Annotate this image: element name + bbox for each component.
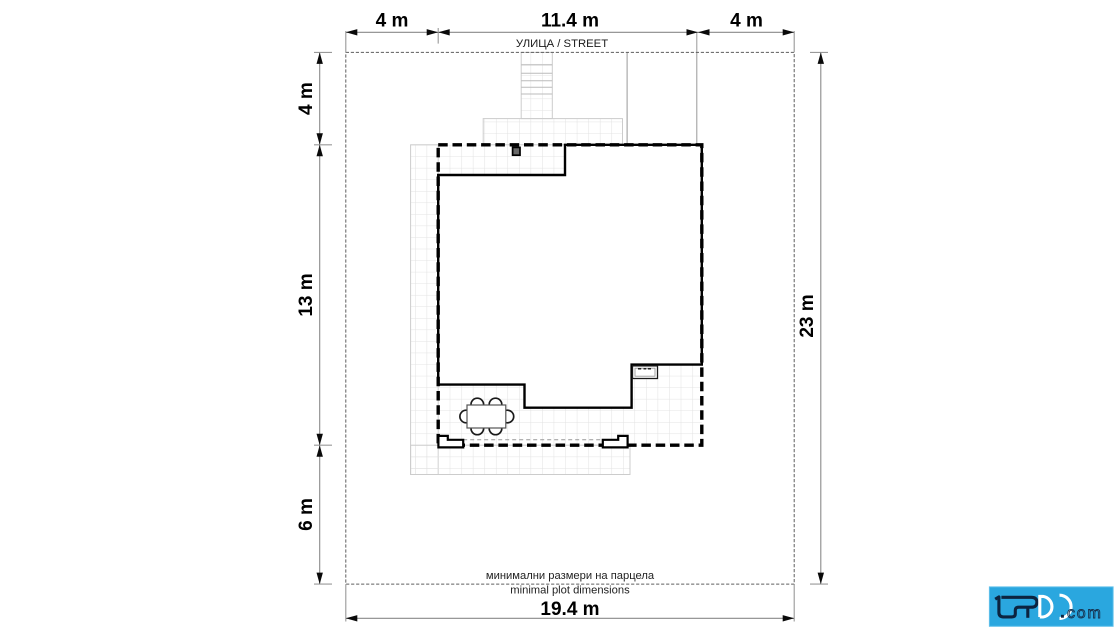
svg-text:УЛИЦА / STREET: УЛИЦА / STREET (516, 38, 608, 50)
svg-text:com: com (1067, 605, 1103, 622)
svg-text:минимални размери на парцела: минимални размери на парцела (486, 570, 655, 582)
svg-text:minimal plot dimensions: minimal plot dimensions (510, 585, 630, 597)
svg-text:6 m: 6 m (296, 498, 317, 531)
svg-text:13 m: 13 m (296, 273, 317, 316)
svg-text:4 m: 4 m (296, 82, 317, 115)
svg-text:11.4 m: 11.4 m (541, 10, 599, 31)
svg-text:23 m: 23 m (797, 294, 818, 337)
svg-text:4 m: 4 m (730, 10, 763, 31)
svg-text:4 m: 4 m (376, 10, 409, 31)
svg-text:19.4 m: 19.4 m (540, 599, 599, 620)
